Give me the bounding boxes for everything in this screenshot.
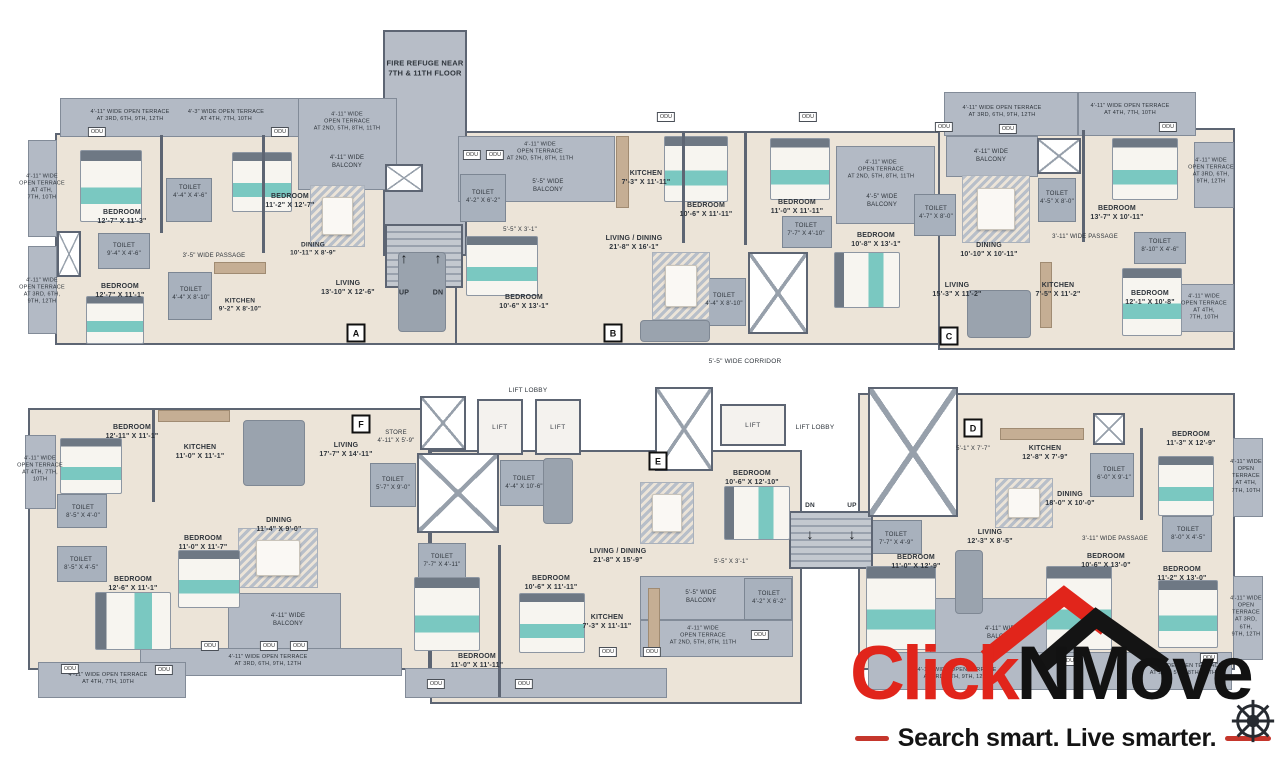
odu-chip: ODU: [515, 679, 533, 689]
room-label: 4'-11" WIDE OPEN TERRACE AT 2ND, 5TH, 8T…: [670, 625, 736, 646]
odu-chip: ODU: [999, 124, 1017, 134]
brand-nmove: NMove: [1017, 631, 1251, 716]
room-label: BEDROOM 10'-6" X 13'-1": [499, 293, 549, 311]
sofa: [640, 320, 710, 342]
room-label: BEDROOM 11'-0" X 11'-11": [451, 652, 503, 670]
room-label: 4'-11" WIDE BALCONY: [974, 149, 1008, 165]
room-label: LIVING 12'-3" X 8'-5": [967, 528, 1012, 546]
dining-rug: [962, 175, 1030, 243]
room-label: BEDROOM 11'-0" X 11'-7": [179, 534, 228, 552]
kitchen-counter: [214, 262, 266, 274]
lift-shaft: [420, 396, 466, 450]
dining-table: [977, 188, 1015, 230]
dining-rug: [640, 482, 694, 544]
room-label: DINING 10'-10" X 10'-11": [960, 241, 1017, 259]
odu-chip: ODU: [427, 679, 445, 689]
wall: [682, 133, 685, 243]
tagline-dash-left: [855, 736, 889, 741]
room-label: KITCHEN 9'-2" X 8'-10": [219, 298, 261, 315]
dining-table: [256, 540, 301, 577]
room-label: 5'-1" X 7'-7": [956, 446, 990, 454]
odu-chip: ODU: [155, 665, 173, 675]
lift: LIFT: [535, 399, 581, 455]
room-label: BEDROOM 10'-6" X 12'-10": [725, 469, 779, 487]
bed: [86, 296, 144, 344]
tagline-text: Search smart. Live smarter.: [898, 724, 1216, 753]
room-label: TOILET 8'-0" X 4'-5": [1171, 527, 1205, 543]
lift: LIFT: [477, 399, 523, 455]
room-label: LIFT LOBBY: [796, 424, 835, 432]
brand-click: Click: [850, 631, 1017, 716]
room-label: TOILET 6'-0" X 9'-1": [1097, 467, 1131, 483]
room-label: 3'-11" WIDE PASSAGE: [1052, 234, 1118, 242]
stair-direction-arrow-icon: ↑: [401, 250, 408, 266]
room-label: DN: [805, 502, 815, 510]
room-label: TOILET 7'-7" X 4'-9": [879, 532, 913, 548]
unit-marker-c: C: [940, 327, 959, 346]
room-label: TOILET 4'-7" X 8'-0": [919, 206, 953, 222]
bed: [466, 236, 538, 296]
odu-chip: ODU: [799, 112, 817, 122]
room-label: STORE 4'-11" X 5'-9": [378, 430, 415, 446]
room-label: TOILET 9'-4" X 4'-6": [107, 243, 141, 259]
room-label: 5'-5" WIDE CORRIDOR: [709, 358, 782, 366]
room-label: 4'-11" WIDE OPEN TERRACE AT 3RD, 6TH, 9T…: [90, 109, 169, 123]
compass-icon: [1228, 696, 1278, 746]
odu-chip: ODU: [61, 664, 79, 674]
dining-table: [322, 197, 353, 235]
room-label: LIFT LOBBY: [509, 387, 548, 395]
dining-rug: [238, 528, 318, 588]
room-label: 4'-11" WIDE OPEN TERRACE AT 3RD, 6TH, 9T…: [1188, 158, 1234, 187]
room-label: BEDROOM 13'-7" X 10'-11": [1090, 204, 1143, 222]
dining-table: [1008, 488, 1041, 519]
room-label: TOILET 5'-7" X 9'-0": [376, 477, 410, 493]
room-label: 5'-5" X 3'-1": [503, 227, 537, 235]
unit-marker-d: D: [964, 419, 983, 438]
sofa: [543, 458, 573, 524]
odu-chip: ODU: [935, 122, 953, 132]
wall: [1082, 130, 1085, 242]
odu-chip: ODU: [260, 641, 278, 651]
room-label: LIVING 15'-3" X 11'-2": [932, 281, 981, 299]
bed: [414, 577, 480, 651]
room-label: BEDROOM 10'-6" X 13'-0": [1081, 552, 1131, 570]
odu-chip: ODU: [1159, 122, 1177, 132]
odu-chip: ODU: [751, 630, 769, 640]
room-label: 3'-5" WIDE PASSAGE: [183, 253, 246, 261]
room-label: 4'-11" WIDE OPEN TERRACE AT 2ND, 5TH, 8T…: [507, 141, 573, 162]
room-label: BEDROOM 11'-0" X 11'-11": [771, 198, 823, 216]
bed: [664, 136, 728, 202]
bed: [519, 593, 585, 653]
stair-direction-arrow-icon: ↓: [807, 526, 814, 542]
room-label: KITCHEN 11'-0" X 11'-1": [176, 443, 225, 461]
kitchen-counter: [648, 588, 660, 650]
room-label: BEDROOM 11'-3" X 12'-9": [1166, 430, 1215, 448]
kitchen-counter: [1000, 428, 1084, 440]
bed: [834, 252, 900, 308]
floorplan: LIFTLIFTLIFT4'-11" WIDE OPEN TERRACE AT …: [0, 0, 1280, 763]
bed: [178, 550, 240, 608]
odu-chip: ODU: [486, 150, 504, 160]
room-label: UP: [399, 288, 409, 297]
bed: [1158, 456, 1214, 516]
room-label: BEDROOM 12'-1" X 10'-8": [1125, 289, 1175, 307]
wall: [498, 545, 501, 697]
room-label: 4'-11" WIDE OPEN TERRACE AT 2ND, 5TH, 8T…: [848, 159, 914, 180]
room-label: DINING 11'-4" X 9'-0": [256, 516, 301, 534]
odu-chip: ODU: [271, 127, 289, 137]
sofa: [243, 420, 305, 486]
dining-rug: [652, 252, 710, 320]
room-label: TOILET 8'-5" X 4'-5": [64, 557, 98, 573]
room-label: BEDROOM 10'-6" X 11'-11": [525, 574, 578, 592]
dining-table: [652, 494, 683, 532]
room-label: TOILET 8'-5" X 4'-0": [66, 505, 100, 521]
room-label: DINING 10'-11" X 8'-9": [290, 242, 336, 259]
room-label: 4'-11" WIDE OPEN TERRACE AT 2ND, 5TH, 8T…: [314, 111, 380, 132]
odu-chip: ODU: [643, 647, 661, 657]
room-label: TOILET 7'-7" X 4'-11": [424, 554, 461, 570]
wall: [160, 135, 163, 233]
room-label: TOILET 4'-2" X 6'-2": [466, 190, 500, 206]
odu-chip: ODU: [290, 641, 308, 651]
room-label: 4'-5" WIDE BALCONY: [866, 194, 897, 210]
room-label: UP: [847, 502, 856, 510]
room-label: 4'-3" WIDE OPEN TERRACE AT 4TH, 7TH, 10T…: [188, 109, 264, 123]
stair-direction-arrow-icon: ↑: [435, 250, 442, 266]
lift-shaft: [57, 231, 81, 277]
room-label: BEDROOM 12'-11" X 11'-1": [106, 423, 159, 441]
room-label: 4'-11" WIDE OPEN TERRACE AT 4TH, 7TH, 10…: [1090, 103, 1169, 117]
stair-direction-arrow-icon: ↓: [849, 526, 856, 542]
room-label: TOILET 4'-4" X 8'-10": [705, 293, 742, 309]
bed: [724, 486, 790, 540]
room-label: 4'-11" WIDE OPEN TERRACE AT 4TH, 7TH, 10…: [17, 456, 63, 485]
brand-wordmark: ClickNMove: [850, 636, 1251, 712]
room-label: KITCHEN 12'-8" X 7'-9": [1022, 444, 1067, 462]
room-label: 5'-5" WIDE BALCONY: [685, 590, 716, 606]
tagline-row: Search smart. Live smarter.: [846, 724, 1280, 753]
room-label: TOILET 7'-7" X 4'-10": [787, 223, 824, 239]
room-label: BEDROOM 11'-2" X 12'-7": [265, 192, 314, 210]
room-label: KITCHEN 7'-3" X 11'-11": [583, 613, 632, 631]
room-label: TOILET 4'-4" X 10'-6": [505, 476, 542, 492]
room-label: 4'-11" WIDE OPEN TERRACE AT 3RD, 6TH, 9T…: [962, 105, 1041, 119]
room-label: TOILET 4'-2" X 6'-2": [752, 591, 786, 607]
wall: [1140, 428, 1143, 520]
clicknmove-logo: ClickNMove Search smart. Live smarter.: [846, 580, 1280, 763]
lift-shaft: [1037, 138, 1081, 174]
odu-chip: ODU: [657, 112, 675, 122]
lift-shaft: [385, 164, 423, 192]
room-label: DN: [433, 288, 444, 297]
room-label: LIVING / DINING 21'-8" X 16'-1": [606, 234, 663, 252]
unit-marker-a: A: [347, 324, 366, 343]
room-label: 3'-11" WIDE PASSAGE: [1082, 536, 1148, 544]
room-label: BEDROOM 12'-6" X 11'-1": [108, 575, 157, 593]
room-label: 4'-11" WIDE BALCONY: [330, 155, 364, 171]
room-label: LIVING 13'-10" X 12'-6": [321, 279, 375, 297]
unit-marker-e: E: [649, 452, 668, 471]
unit-marker-f: F: [352, 415, 371, 434]
room-label: FIRE REFUGE NEAR 7TH & 11TH FLOOR: [387, 58, 464, 78]
unit-marker-b: B: [604, 324, 623, 343]
bed: [770, 138, 830, 200]
room-label: BEDROOM 12'-7" X 11'-3": [97, 208, 146, 226]
room-label: TOILET 4'-4" X 8'-10": [172, 287, 209, 303]
room-label: 4'-11" WIDE OPEN TERRACE AT 4TH, 7TH, 10…: [68, 672, 147, 686]
odu-chip: ODU: [88, 127, 106, 137]
room-label: BEDROOM 10'-8" X 13'-1": [851, 231, 901, 249]
room-label: 4'-11" WIDE OPEN TERRACE AT 3RD, 6TH, 9T…: [228, 654, 307, 668]
room-label: LIVING / DINING 21'-8" X 15'-9": [590, 547, 647, 565]
lift-shaft: [868, 387, 958, 517]
lift: LIFT: [720, 404, 786, 446]
odu-chip: ODU: [463, 150, 481, 160]
room-label: 5'-5" WIDE BALCONY: [532, 179, 563, 195]
room-label: BEDROOM 11'-0" X 12'-9": [891, 553, 940, 571]
lift-shaft: [1093, 413, 1125, 445]
room-label: BEDROOM 10'-6" X 11'-11": [680, 201, 733, 219]
odu-chip: ODU: [201, 641, 219, 651]
bed: [60, 438, 122, 494]
room-label: TOILET 4'-4" X 4'-6": [173, 185, 207, 201]
kitchen-counter: [158, 410, 230, 422]
staircase: [789, 511, 873, 569]
room-label: 5'-5" X 3'-1": [714, 559, 748, 567]
bed: [95, 592, 171, 650]
bed: [1112, 138, 1178, 200]
room-label: TOILET 8'-10" X 4'-6": [1141, 239, 1178, 255]
room-label: TOILET 4'-5" X 8'-0": [1040, 191, 1074, 207]
lift-shaft: [748, 252, 808, 334]
wall: [744, 133, 747, 245]
odu-chip: ODU: [599, 647, 617, 657]
dining-rug: [310, 185, 365, 247]
lift-shaft: [417, 453, 499, 533]
room-label: 4'-11" WIDE OPEN TERRACE AT 4TH, 7TH, 10…: [1181, 294, 1227, 323]
dining-table: [665, 265, 698, 307]
room-label: 4'-11" WIDE BALCONY: [271, 613, 305, 629]
room-label: DINING 18'-0" X 10'-0": [1045, 490, 1095, 508]
room-label: KITCHEN 7'-3" X 11'-11": [622, 169, 671, 187]
room-label: 4'-11" WIDE OPEN TERRACE AT 3RD, 6TH, 9T…: [19, 278, 65, 307]
room-label: 4'-11" WIDE OPEN TERRACE AT 4TH, 7TH, 10…: [1229, 459, 1263, 495]
room-label: 4'-11" WIDE OPEN TERRACE AT 4TH, 7TH, 10…: [19, 174, 65, 203]
room-label: LIVING 17'-7" X 14'-11": [319, 441, 372, 459]
room-label: KITCHEN 7'-5" X 11'-2": [1035, 281, 1080, 299]
room-label: BEDROOM 12'-7" X 11'-1": [95, 282, 144, 300]
